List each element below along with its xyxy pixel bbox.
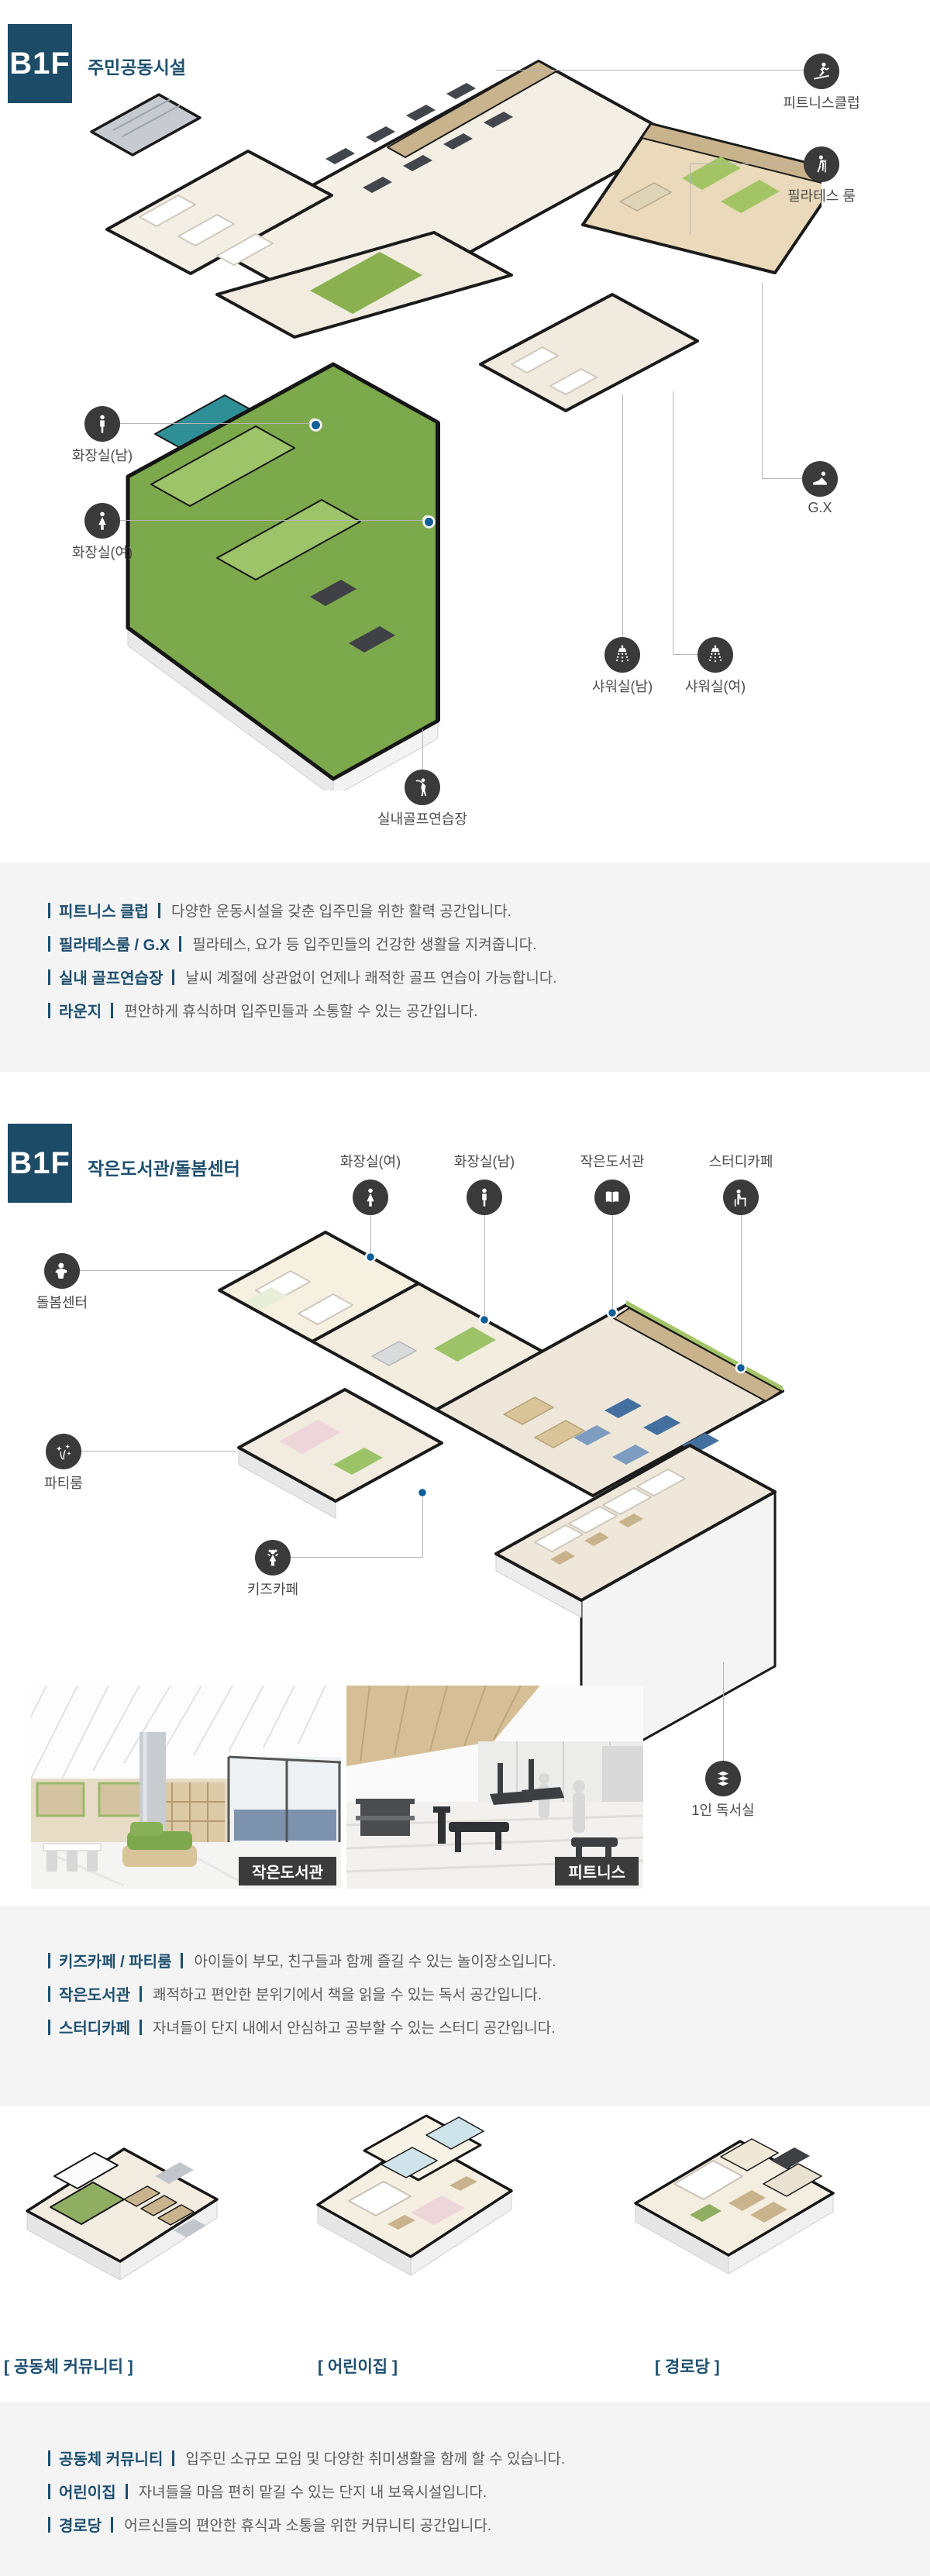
desc-label: 작은도서관 xyxy=(59,1982,130,2005)
callout-label: 파티룸 xyxy=(2,1472,126,1493)
page: B1F 주민공동시설 xyxy=(0,0,930,2576)
kid-icon xyxy=(255,1540,291,1576)
description-row: 작은도서관쾌적하고 편안한 분위기에서 책을 읽을 수 있는 독서 공간입니다. xyxy=(48,1977,930,2010)
floor-badge-label: B1F xyxy=(9,46,71,81)
desc-text: 어르신들의 편안한 휴식과 소통을 위한 커뮤니티 공간입니다. xyxy=(124,2514,491,2535)
desc-text: 날씨 계절에 상관없이 언제나 쾌적한 골프 연습이 가능합니다. xyxy=(185,966,556,987)
callout-label: 피트니스클럽 xyxy=(759,92,883,112)
plan-anchor-dot xyxy=(310,419,322,431)
photo-tag: 피트니스 xyxy=(555,1857,639,1886)
leader-line xyxy=(496,70,804,71)
miniplan-daycare xyxy=(294,2058,527,2352)
desc-text: 편안하게 휴식하며 입주민들과 소통할 수 있는 공간입니다. xyxy=(124,1000,477,1021)
description-row: 피트니스 클럽다양한 운동시설을 갖춘 입주민을 위한 활력 공간입니다. xyxy=(48,894,930,927)
leader-line xyxy=(673,654,697,655)
library-photo: 작은도서관 xyxy=(31,1686,341,1889)
desc-label: 공동체 커뮤니티 xyxy=(59,2447,163,2469)
desc-text: 자녀들이 단지 내에서 안심하고 공부할 수 있는 스터디 공간입니다. xyxy=(153,2016,555,2037)
leader-line xyxy=(762,478,802,479)
desc-label: 어린이집 xyxy=(59,2480,116,2502)
desc-label: 키즈카페 / 파티룸 xyxy=(59,1949,171,1972)
leader-line xyxy=(370,1215,371,1254)
description-row: 라운지편안하게 휴식하며 입주민들과 소통할 수 있는 공간입니다. xyxy=(48,994,930,1027)
caregiver-icon xyxy=(44,1253,80,1289)
callout-label: 화장실(남) xyxy=(422,1151,546,1171)
miniplan-label-daycare: [ 어린이집 ] xyxy=(318,2354,398,2378)
gx-yoga-icon xyxy=(802,461,838,497)
leader-line xyxy=(723,1662,724,1761)
miniplan-label-community: [ 공동체 커뮤니티 ] xyxy=(4,2354,133,2378)
callout-label: 샤워실(여) xyxy=(653,676,777,696)
leader-line xyxy=(484,1215,485,1316)
miniplan-label-seniors: [ 경로당 ] xyxy=(655,2354,720,2378)
books-stack-icon xyxy=(705,1761,741,1796)
callout-label: 필라테스 룸 xyxy=(759,185,883,205)
party-icon xyxy=(46,1434,81,1469)
callout-label: 작은도서관 xyxy=(550,1151,674,1171)
floor-badge-1: B1F xyxy=(8,24,72,103)
leader-line xyxy=(422,729,423,770)
description-row: 필라테스룸 / G.X필라테스, 요가 등 입주민들의 건강한 생활을 지켜줍니… xyxy=(48,927,930,960)
desc-text: 쾌적하고 편안한 분위기에서 책을 읽을 수 있는 독서 공간입니다. xyxy=(153,1983,542,2004)
shower-icon xyxy=(604,637,640,673)
callout-label: G.X xyxy=(758,500,882,516)
leader-line xyxy=(622,394,623,637)
desc-text: 다양한 운동시설을 갖춘 입주민을 위한 활력 공간입니다. xyxy=(171,900,511,921)
leader-line xyxy=(741,1215,742,1364)
desc-text: 아이들이 부모, 친구들과 함께 즐길 수 있는 놀이장소입니다. xyxy=(194,1950,556,1971)
male-icon xyxy=(84,406,120,442)
leader-line xyxy=(291,1557,423,1558)
callout-label: 돌봄센터 xyxy=(0,1292,124,1312)
open-book-icon xyxy=(594,1180,630,1215)
miniplan-community xyxy=(8,2083,232,2347)
floor-badge-label: B1F xyxy=(9,1146,71,1181)
callout-label: 화장실(여) xyxy=(40,542,164,562)
female-icon xyxy=(353,1180,388,1215)
section1-descriptions: 피트니스 클럽다양한 운동시설을 갖춘 입주민을 위한 활력 공간입니다. 필라… xyxy=(0,863,930,1072)
desc-label: 필라테스룸 / G.X xyxy=(59,932,170,955)
section2-title: 작은도서관/돌봄센터 xyxy=(88,1154,240,1180)
leader-line xyxy=(120,520,425,521)
leader-line xyxy=(762,283,763,479)
study-desk-icon xyxy=(723,1180,759,1215)
floor-badge-2: B1F xyxy=(8,1124,72,1203)
leader-line xyxy=(81,1451,236,1452)
callout-label: 화장실(여) xyxy=(308,1151,432,1171)
female-icon xyxy=(84,503,120,539)
leader-line xyxy=(690,164,691,235)
callout-label: 스터디카페 xyxy=(679,1151,803,1171)
desc-text: 자녀들을 마음 편히 맡길 수 있는 단지 내 보육시설입니다. xyxy=(139,2481,487,2502)
description-row: 공동체 커뮤니티입주민 소규모 모임 및 다양한 취미생활을 함께 할 수 있습… xyxy=(48,2441,930,2474)
description-row: 키즈카페 / 파티룸아이들이 부모, 친구들과 함께 즐길 수 있는 놀이장소입… xyxy=(48,1944,930,1977)
desc-label: 피트니스 클럽 xyxy=(59,899,149,921)
callout-label: 화장실(남) xyxy=(40,445,164,465)
desc-text: 필라테스, 요가 등 입주민들의 건강한 생활을 지켜줍니다. xyxy=(192,933,536,954)
treadmill-icon xyxy=(804,53,839,89)
desc-text: 입주민 소규모 모임 및 다양한 취미생활을 함께 할 수 있습니다. xyxy=(185,2447,565,2468)
callout-label: 키즈카페 xyxy=(211,1579,335,1599)
callout-label: 1인 독서실 xyxy=(661,1799,785,1820)
description-row: 스터디카페자녀들이 단지 내에서 안심하고 공부할 수 있는 스터디 공간입니다… xyxy=(48,2010,930,2044)
leader-line xyxy=(80,1270,253,1271)
callout-label: 실내골프연습장 xyxy=(360,808,484,828)
desc-label: 실내 골프연습장 xyxy=(59,966,163,988)
plan-anchor-dot xyxy=(423,516,435,528)
section3-descriptions: 공동체 커뮤니티입주민 소규모 모임 및 다양한 취미생활을 함께 할 수 있습… xyxy=(0,2402,930,2576)
desc-label: 스터디카페 xyxy=(59,2016,130,2038)
description-row: 어린이집자녀들을 마음 편히 맡길 수 있는 단지 내 보육시설입니다. xyxy=(48,2474,930,2508)
description-row: 실내 골프연습장날씨 계절에 상관없이 언제나 쾌적한 골프 연습이 가능합니다… xyxy=(48,960,930,994)
miniplan-seniors xyxy=(612,2068,845,2347)
leader-line xyxy=(120,423,312,424)
photo-tag: 작은도서관 xyxy=(239,1857,336,1886)
fitness-photo: 피트니스 xyxy=(346,1686,643,1889)
description-row: 경로당어르신들의 편안한 휴식과 소통을 위한 커뮤니티 공간입니다. xyxy=(48,2508,930,2541)
desc-label: 경로당 xyxy=(59,2513,102,2536)
pilates-icon xyxy=(804,146,839,182)
desc-label: 라운지 xyxy=(59,999,102,1021)
leader-line xyxy=(612,1215,613,1309)
male-icon xyxy=(467,1180,502,1215)
leader-line xyxy=(673,391,673,655)
shower-icon xyxy=(697,637,733,673)
leader-line xyxy=(422,1497,423,1558)
golfer-icon xyxy=(405,770,440,805)
leader-line xyxy=(690,164,804,164)
